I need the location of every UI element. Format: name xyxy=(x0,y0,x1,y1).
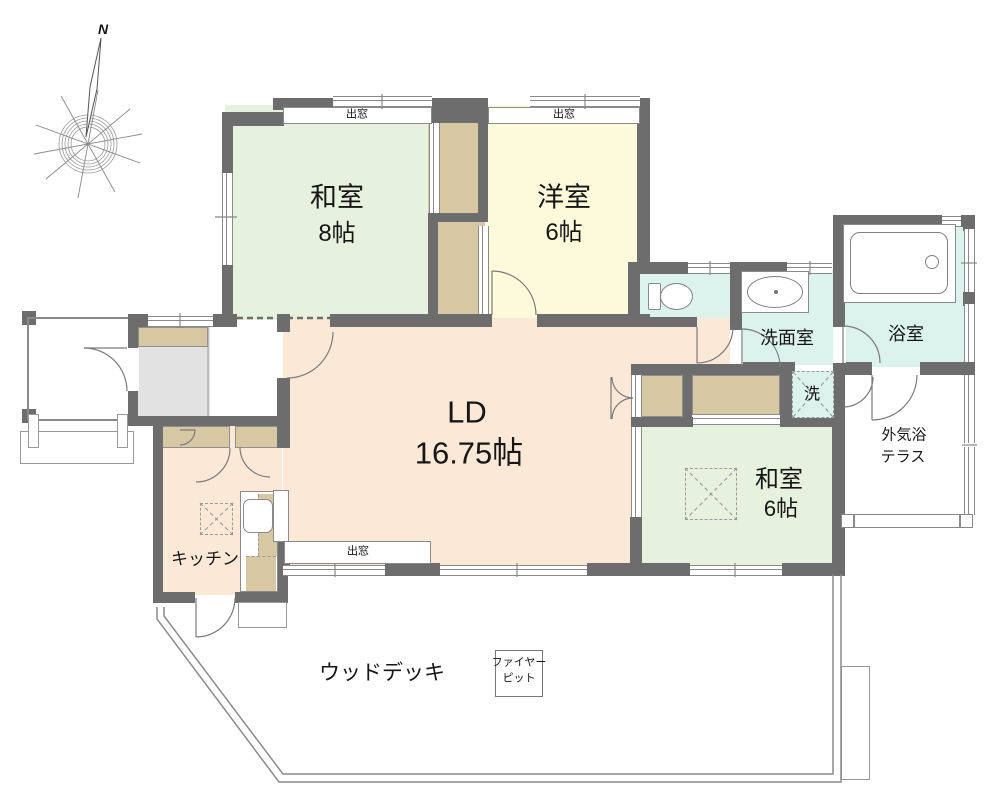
bay-window-label: 出窓 xyxy=(347,547,369,558)
window xyxy=(964,375,975,443)
room-size-ld: 16.75帖 xyxy=(415,438,524,469)
wall xyxy=(780,373,792,417)
kitchen-sink xyxy=(243,499,273,533)
window xyxy=(148,316,213,327)
fire-pit-label-line2: ピット xyxy=(503,674,536,685)
room-washitsu8-floor xyxy=(225,105,440,320)
window xyxy=(688,263,730,274)
wall xyxy=(277,378,290,416)
deck-label: ウッドデッキ xyxy=(319,663,445,684)
wall xyxy=(587,563,690,576)
wall xyxy=(222,265,233,317)
porch-wall-line xyxy=(27,317,128,319)
closet xyxy=(692,375,780,415)
room-label-senmen: 洗面室 xyxy=(760,329,814,347)
wall xyxy=(631,364,783,375)
closet-sliding-door xyxy=(631,375,642,417)
compass-needle xyxy=(86,38,101,137)
porch-wall-line xyxy=(27,317,29,421)
room-size-washitsu6: 6帖 xyxy=(764,498,798,520)
wall xyxy=(833,362,872,375)
entrance-door-opening xyxy=(128,348,139,391)
porch-wall-line xyxy=(27,419,128,421)
sliding-door xyxy=(429,123,440,213)
room-label-bath: 浴室 xyxy=(888,325,924,343)
window xyxy=(440,565,587,576)
laundry-label: 洗 xyxy=(804,387,820,403)
fire-pit-label-line1: ファイヤー xyxy=(492,658,547,669)
compass-rings xyxy=(59,115,117,173)
wall xyxy=(428,222,438,314)
faucet xyxy=(774,290,778,294)
compass xyxy=(34,38,142,198)
room-label-kitchen: キッチン xyxy=(171,551,239,568)
wall xyxy=(153,416,163,603)
wall xyxy=(478,123,488,213)
window xyxy=(283,565,385,576)
fusuma-sliding-door xyxy=(631,427,642,517)
closet xyxy=(160,426,230,448)
room-label-washitsu8: 和室 xyxy=(310,185,364,212)
terrace-label-line1: 外気浴 xyxy=(881,428,926,443)
wall xyxy=(385,563,440,576)
wall xyxy=(222,112,284,126)
bathtub-drain xyxy=(925,255,939,269)
window xyxy=(964,447,975,515)
wall xyxy=(430,98,488,123)
deck-step xyxy=(238,602,287,628)
wall xyxy=(782,563,845,576)
wall xyxy=(277,416,290,448)
closet-sliding-door xyxy=(693,414,780,425)
terrace-railing xyxy=(841,514,973,528)
room-label-washitsu6: 和室 xyxy=(755,468,803,492)
wall xyxy=(640,317,697,327)
room-youshitsu6-floor xyxy=(485,105,645,320)
bay-window-label: 出窓 xyxy=(346,110,368,121)
wall xyxy=(630,517,642,567)
wall xyxy=(330,314,492,327)
room-size-washitsu8: 8帖 xyxy=(318,222,355,246)
wall xyxy=(683,373,692,417)
bath-door-opening xyxy=(833,327,846,363)
floor-hearth-space xyxy=(685,468,737,520)
wall xyxy=(277,314,290,332)
senmen-door-opening xyxy=(730,330,743,364)
terrace-railing-post xyxy=(959,515,961,527)
entrance-step-post xyxy=(28,414,39,448)
refrigerator-space xyxy=(200,503,233,535)
wall xyxy=(125,416,290,426)
window xyxy=(964,304,975,362)
kitchen-counter-overhang xyxy=(273,490,289,542)
deck-extension xyxy=(841,666,870,780)
room-label-youshitsu6: 洋室 xyxy=(537,185,591,212)
room-size-youshitsu6: 6帖 xyxy=(545,221,582,245)
window xyxy=(222,173,233,265)
compass-north-label: N xyxy=(98,22,108,36)
terrace-railing-post xyxy=(853,515,855,527)
bay-window-glass xyxy=(530,96,640,107)
toilet-bowl xyxy=(660,283,693,310)
wall xyxy=(920,362,975,375)
closet xyxy=(235,426,280,448)
genkan-shoe-cabinet xyxy=(138,327,208,347)
bay-window-glass xyxy=(333,96,432,107)
wall xyxy=(640,262,688,274)
terrace-label-line2: テラス xyxy=(881,450,926,465)
wall xyxy=(222,126,233,173)
wall xyxy=(780,417,845,427)
wall xyxy=(631,417,693,427)
compass-rays xyxy=(34,90,142,198)
wall xyxy=(628,262,640,320)
wall xyxy=(637,98,650,274)
kitchen-counter-base xyxy=(246,556,276,591)
entrance-step-post xyxy=(117,414,128,448)
room-label-ld: LD xyxy=(447,397,487,428)
closet xyxy=(640,375,683,417)
window xyxy=(690,565,782,576)
bay-window-label: 出窓 xyxy=(553,110,575,121)
wall xyxy=(428,213,488,222)
sliding-door xyxy=(478,226,489,314)
wall xyxy=(213,314,237,327)
window xyxy=(964,229,975,292)
floor-plan: N 和室 8帖 洋室 6帖 LD 16.75帖 和室 6帖 洗面室 浴室 洗 外… xyxy=(0,0,996,800)
